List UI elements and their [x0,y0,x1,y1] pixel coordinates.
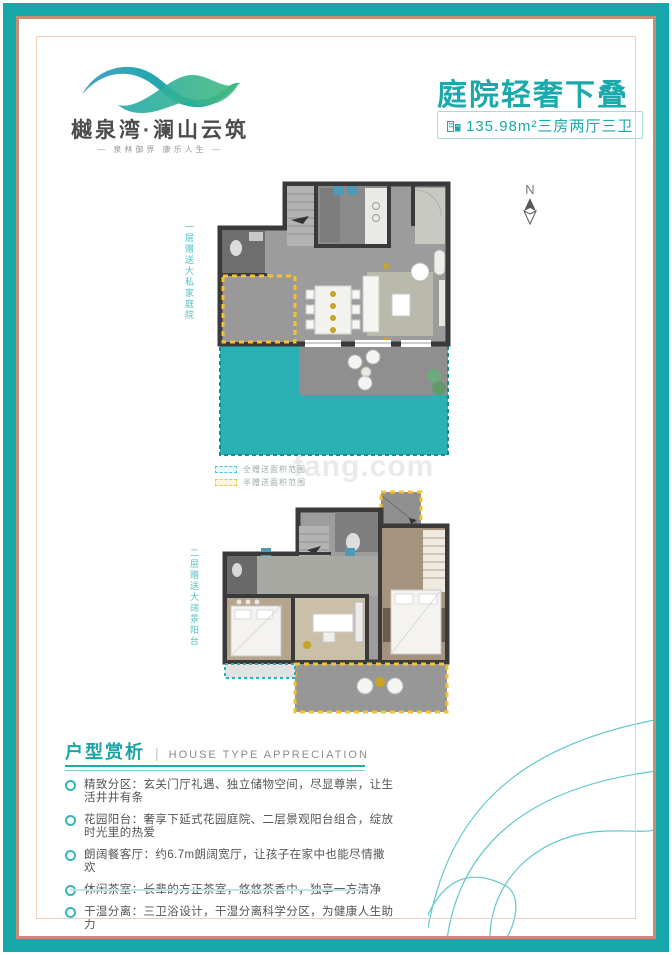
feature-list: 精致分区：玄关门厅礼遇、独立储物空间，尽显尊崇，让生活井井有条 花园阳台：奢享下… [65,779,395,941]
brand-logo-wave [78,55,243,117]
ring-bullet-icon [65,850,76,861]
feature-item: 精致分区：玄关门厅礼遇、独立储物空间，尽显尊崇，让生活井井有条 [65,779,395,805]
watermark-text: fang.com [293,450,434,484]
feature-item: 朗阔餐客厅：约6.7m朗阔宽厅，让孩子在家中也能尽情撒欢 [65,849,395,875]
feature-text: 花园阳台：奢享下延式花园庭院、二层景观阳台组合，绽放时光里的热爱 [84,814,395,840]
compass-needle-icon [522,197,538,225]
area-spec-text: 135.98m²三房两厅三卫 [466,115,633,136]
section-separator: | [155,745,159,761]
north-label: N [518,182,542,197]
ring-bullet-icon [65,907,76,918]
feature-text: 干湿分离：三卫浴设计，干湿分离科学分区，为健康人生助力 [84,906,395,932]
north-compass: N [518,182,542,230]
area-spec-badge: 135.98m²三房两厅三卫 [437,111,643,139]
ring-bullet-icon [65,780,76,791]
page-title: 庭院轻奢下叠 [437,70,647,114]
first-floor-plan [187,176,465,464]
feature-item: 干湿分离：三卫浴设计，干湿分离科学分区，为健康人生助力 [65,906,395,932]
footer-rule [70,889,365,891]
section-header: 户型赏析 | HOUSE TYPE APPRECIATION [65,738,369,764]
feature-text: 精致分区：玄关门厅礼遇、独立储物空间，尽显尊崇，让生活井井有条 [84,779,395,805]
section-divider [65,765,365,771]
section-title-zh: 户型赏析 [65,738,145,764]
full-gift-swatch [215,466,237,473]
building-icon [447,119,461,132]
ring-bullet-icon [65,815,76,826]
second-floor-plan [195,490,465,730]
feature-text: 朗阔餐客厅：约6.7m朗阔宽厅，让孩子在家中也能尽情撒欢 [84,849,395,875]
flyer-page: 樾泉湾·澜山云筑 — 泉林御界 康乐人生 — 庭院轻奢下叠 135.98m²三房… [0,0,672,955]
half-gift-swatch [215,479,237,486]
brand-tagline: — 泉林御界 康乐人生 — [50,144,270,155]
feature-item: 花园阳台：奢享下延式花园庭院、二层景观阳台组合，绽放时光里的热爱 [65,814,395,840]
brand-name: 樾泉湾·澜山云筑 [50,114,270,144]
section-title-en: HOUSE TYPE APPRECIATION [169,749,369,761]
